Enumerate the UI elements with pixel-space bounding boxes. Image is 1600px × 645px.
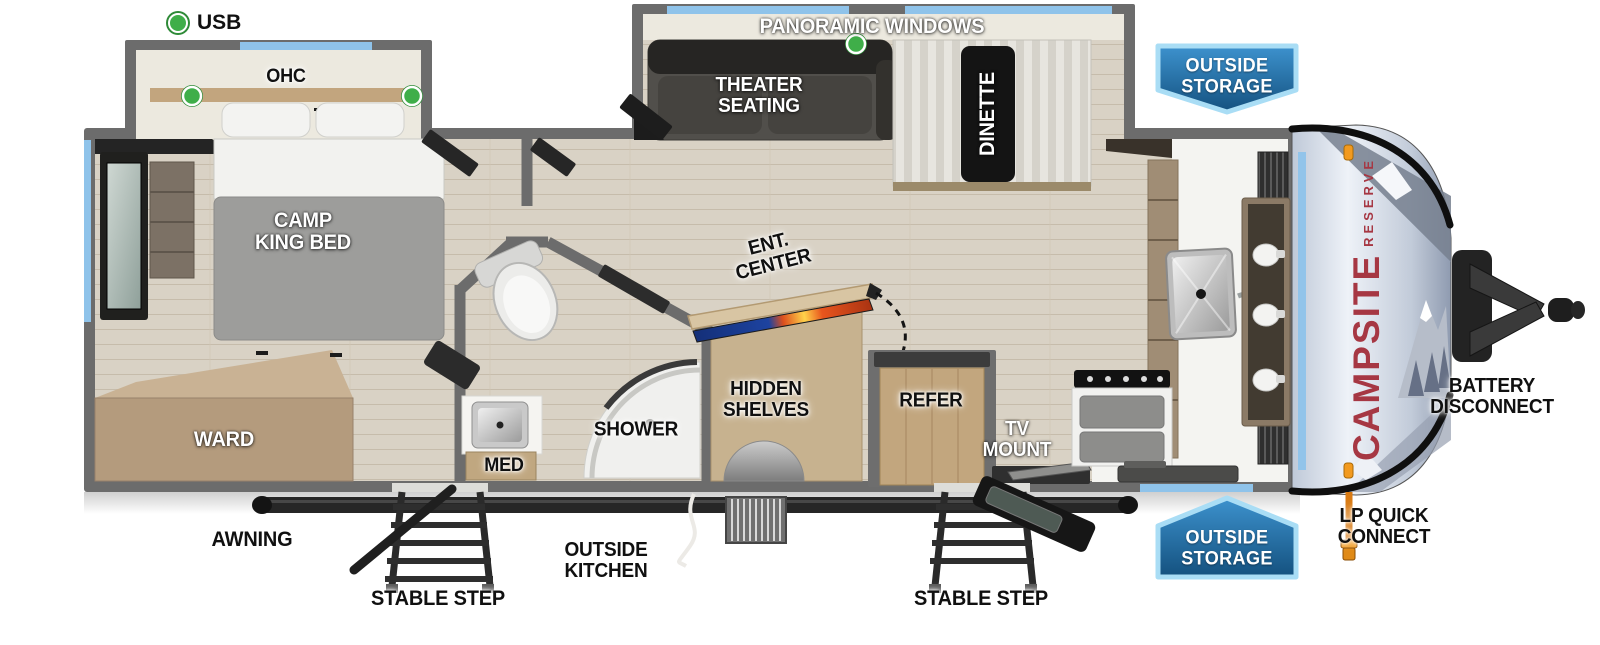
refrigerator bbox=[868, 350, 996, 487]
dinette-table bbox=[961, 46, 1015, 182]
bedroom-slideout bbox=[125, 40, 432, 139]
outside-storage-badge-top bbox=[1158, 46, 1296, 112]
soffit bbox=[95, 139, 232, 154]
cap-window-strip bbox=[1298, 152, 1306, 470]
front-cap bbox=[1292, 125, 1451, 495]
usb-port-indicator bbox=[845, 33, 867, 55]
outside-kitchen-vent bbox=[726, 497, 786, 543]
counter-board bbox=[1118, 466, 1238, 482]
usb-port-indicator bbox=[401, 85, 423, 107]
window-strip bbox=[667, 6, 849, 14]
lp-quick-connect-fitting bbox=[1341, 492, 1357, 560]
bedroom-cabinet bbox=[150, 162, 194, 278]
bed-sheet bbox=[214, 139, 444, 199]
window-strip bbox=[905, 6, 1112, 14]
clearance-light bbox=[1344, 463, 1353, 478]
dinette-booth bbox=[893, 40, 1091, 191]
pantry bbox=[1242, 152, 1290, 464]
window-strip bbox=[240, 42, 372, 50]
tongue-hitch bbox=[1452, 250, 1585, 362]
kitchen-sink bbox=[1166, 248, 1237, 339]
med-vanity bbox=[462, 396, 542, 480]
door-side-window-strip bbox=[1140, 484, 1253, 492]
stove bbox=[1072, 370, 1172, 466]
clearance-light bbox=[1344, 145, 1353, 160]
usb-port-indicator bbox=[181, 85, 203, 107]
wardrobe bbox=[95, 398, 353, 481]
floorplan-canvas: USB OHC PANORAMIC WINDOWS THEATER SEATIN… bbox=[0, 0, 1600, 645]
theater-seating-sofa bbox=[634, 40, 898, 140]
camp-king-bed bbox=[214, 197, 444, 340]
pillow bbox=[222, 103, 310, 137]
entry-threshold bbox=[392, 483, 488, 492]
pillow bbox=[316, 103, 404, 137]
rear-window-strip bbox=[84, 140, 91, 322]
usb-legend: USB bbox=[168, 11, 241, 35]
floorplan-drawing bbox=[0, 0, 1600, 645]
usb-legend-label: USB bbox=[197, 11, 241, 35]
usb-indicator-dot bbox=[168, 13, 188, 33]
med-cabinet bbox=[466, 452, 536, 480]
